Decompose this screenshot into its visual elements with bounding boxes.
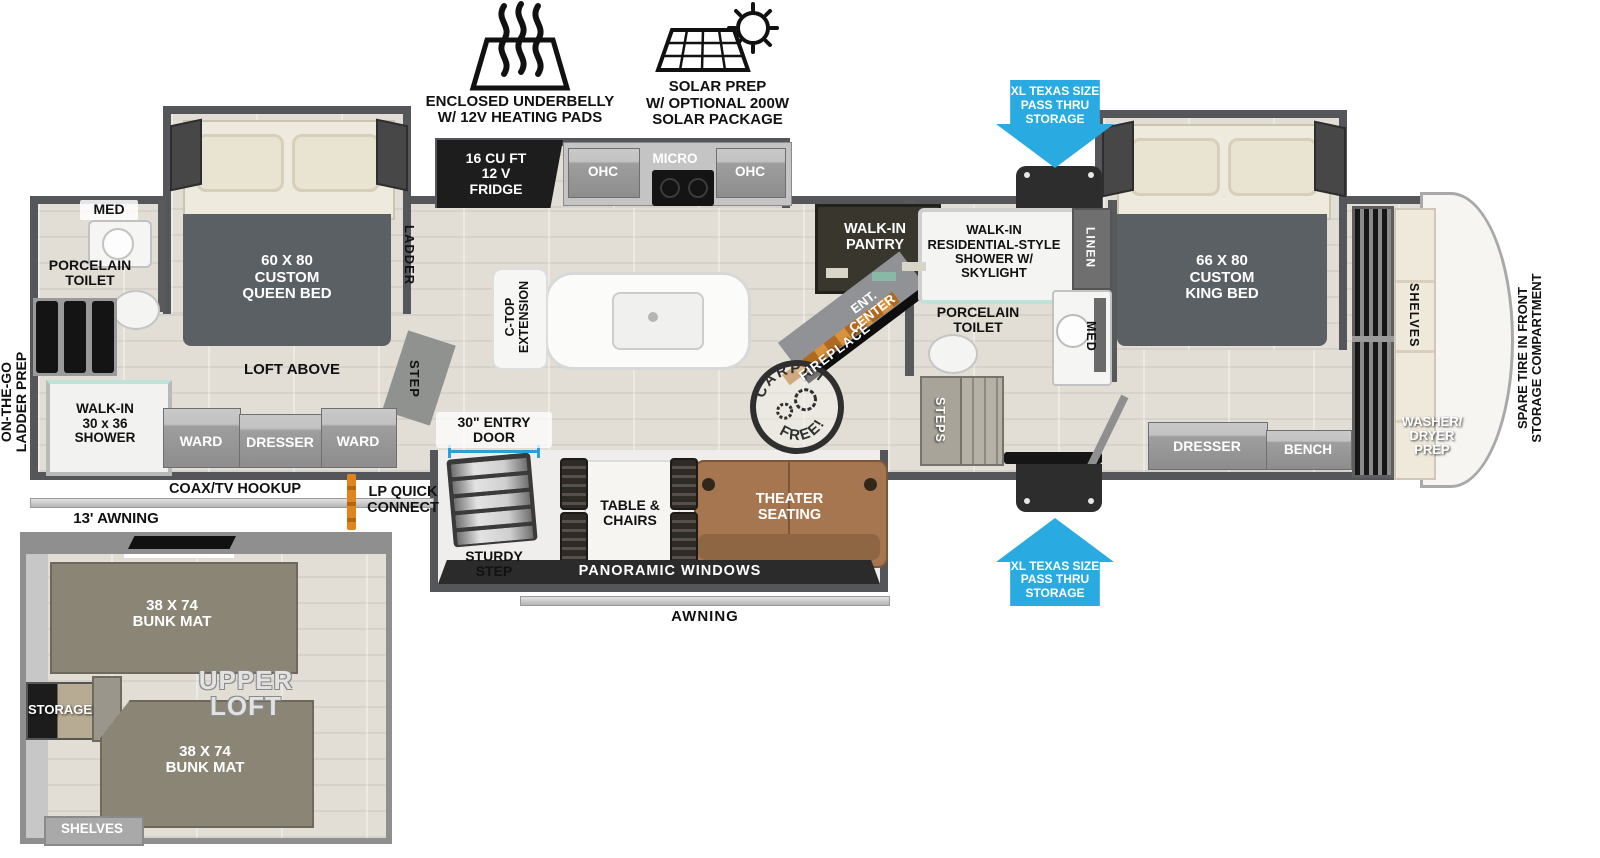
closet-bar [36, 301, 58, 373]
pantry-shelf-icon [826, 268, 848, 278]
island-sink-icon [612, 292, 704, 350]
table-chairs-label: TABLE & CHAIRS [574, 494, 686, 532]
closet-bar [92, 301, 114, 373]
micro-label: MICRO [640, 146, 710, 172]
bench-label: BENCH [1266, 436, 1350, 464]
king-bed-label: 66 X 80 CUSTOM KING BED [1117, 228, 1327, 328]
panoramic-label: PANORAMIC WINDOWS [520, 560, 820, 584]
front-shelves-label: SHELVES [1402, 268, 1424, 362]
hatch-screw-icon [1024, 172, 1030, 178]
theater-sofa-back [698, 534, 880, 560]
linen-label: LINEN [1074, 212, 1106, 282]
closet-bar [64, 301, 86, 373]
living-awning-rail-icon [520, 596, 890, 606]
awning13-label: 13' AWNING [56, 508, 176, 530]
passthru-hatch-bottom [1016, 464, 1102, 512]
step-label: STEP [402, 344, 426, 414]
rear-closet [33, 298, 117, 376]
coax-label: COAX/TV HOOKUP [160, 480, 310, 500]
loft-above-label: LOFT ABOVE [228, 360, 356, 380]
pantry-label: WALK-IN PANTRY [815, 210, 935, 266]
passthru-arrow-bottom: XL TEXAS SIZE PASS THRU STORAGE [996, 518, 1114, 606]
king-window-left-icon [1102, 121, 1134, 198]
bunk-mat-bottom-label: 38 X 74 BUNK MAT [100, 738, 310, 782]
steps-right-panel [960, 376, 1004, 466]
sturdy-step-stairs [446, 453, 537, 548]
dresser-front-label: DRESSER [1148, 432, 1266, 462]
queen-bed-label: 60 X 80 CUSTOM QUEEN BED [183, 228, 391, 328]
entry-door-measure-icon [448, 450, 540, 453]
rear-shower-label: WALK-IN 30 x 36 SHOWER [48, 382, 162, 466]
ladder-prep-label: ON-THE-GO LADDER PREP [0, 302, 32, 502]
hatch-screw-icon [1088, 498, 1094, 504]
queen-window-left-icon [170, 119, 202, 192]
ward-right-label: WARD [321, 424, 395, 460]
loft-vent-trim-icon [124, 554, 234, 558]
rear-toilet-label: PORCELAIN TOILET [30, 254, 150, 292]
king-pillow-right [1228, 138, 1318, 196]
mid-toilet-icon [928, 334, 978, 374]
rear-toilet-icon [112, 290, 160, 330]
mid-shower-label: WALK-IN RESIDENTIAL-STYLE SHOWER W/ SKYL… [920, 210, 1068, 294]
washer-dryer-label: WASHER/ DRYER PREP [1386, 408, 1478, 464]
ohc-right-label: OHC [716, 152, 784, 192]
spare-tire-label: SPARE TIRE IN FRONT STORAGE COMPARTMENT [1512, 243, 1548, 473]
faucet-icon [648, 312, 658, 322]
bunk-mat-top-label: 38 X 74 BUNK MAT [50, 592, 294, 636]
queen-pillow-right [292, 134, 380, 192]
loft-shelves-label: SHELVES [44, 818, 140, 840]
loft-storage-label: STORAGE [22, 700, 98, 720]
hatch-screw-icon [1024, 498, 1030, 504]
mid-med-label: MED [1082, 304, 1098, 368]
entry-door-label: 30" ENTRY DOOR [436, 412, 552, 448]
ctop-extension-label: C-TOP EXTENSION [501, 267, 535, 367]
lp-connector-icon [347, 474, 356, 530]
solar-label: SOLAR PREP W/ OPTIONAL 200W SOLAR PACKAG… [625, 78, 810, 130]
hatch-screw-icon [1088, 172, 1094, 178]
rear-med-label: MED [80, 200, 138, 220]
loft-vent-icon [128, 536, 236, 549]
rv-floorplan: ENCLOSED UNDERBELLY W/ 12V HEATING PADS … [0, 0, 1600, 858]
solar-panel-icon [650, 0, 790, 80]
ward-left-label: WARD [163, 424, 239, 460]
rear-bath-wall [158, 200, 166, 312]
dresser-rear-label: DRESSER [239, 426, 321, 460]
upper-loft-title: UPPER LOFT [176, 660, 316, 726]
awning-label: AWNING [650, 606, 760, 628]
queen-pillow-left [196, 134, 284, 192]
ohc-left-label: OHC [568, 152, 638, 192]
ladder-label: LADDER [396, 205, 422, 305]
heating-pads-icon [455, 0, 585, 92]
king-window-right-icon [1314, 121, 1346, 198]
king-pillow-left [1130, 138, 1220, 196]
fridge-label: 16 CU FT 12 V FRIDGE [437, 142, 555, 206]
burner-icon [660, 178, 680, 198]
theater-label: THEATER SEATING [712, 488, 867, 528]
burner-icon [688, 178, 708, 198]
front-wardrobe-divider [1352, 336, 1394, 342]
steps-label: STEPS [926, 382, 952, 458]
mid-toilet-label: PORCELAIN TOILET [916, 302, 1040, 338]
underbelly-label: ENCLOSED UNDERBELLY W/ 12V HEATING PADS [390, 90, 650, 130]
lp-label: LP QUICK CONNECT [360, 482, 446, 520]
